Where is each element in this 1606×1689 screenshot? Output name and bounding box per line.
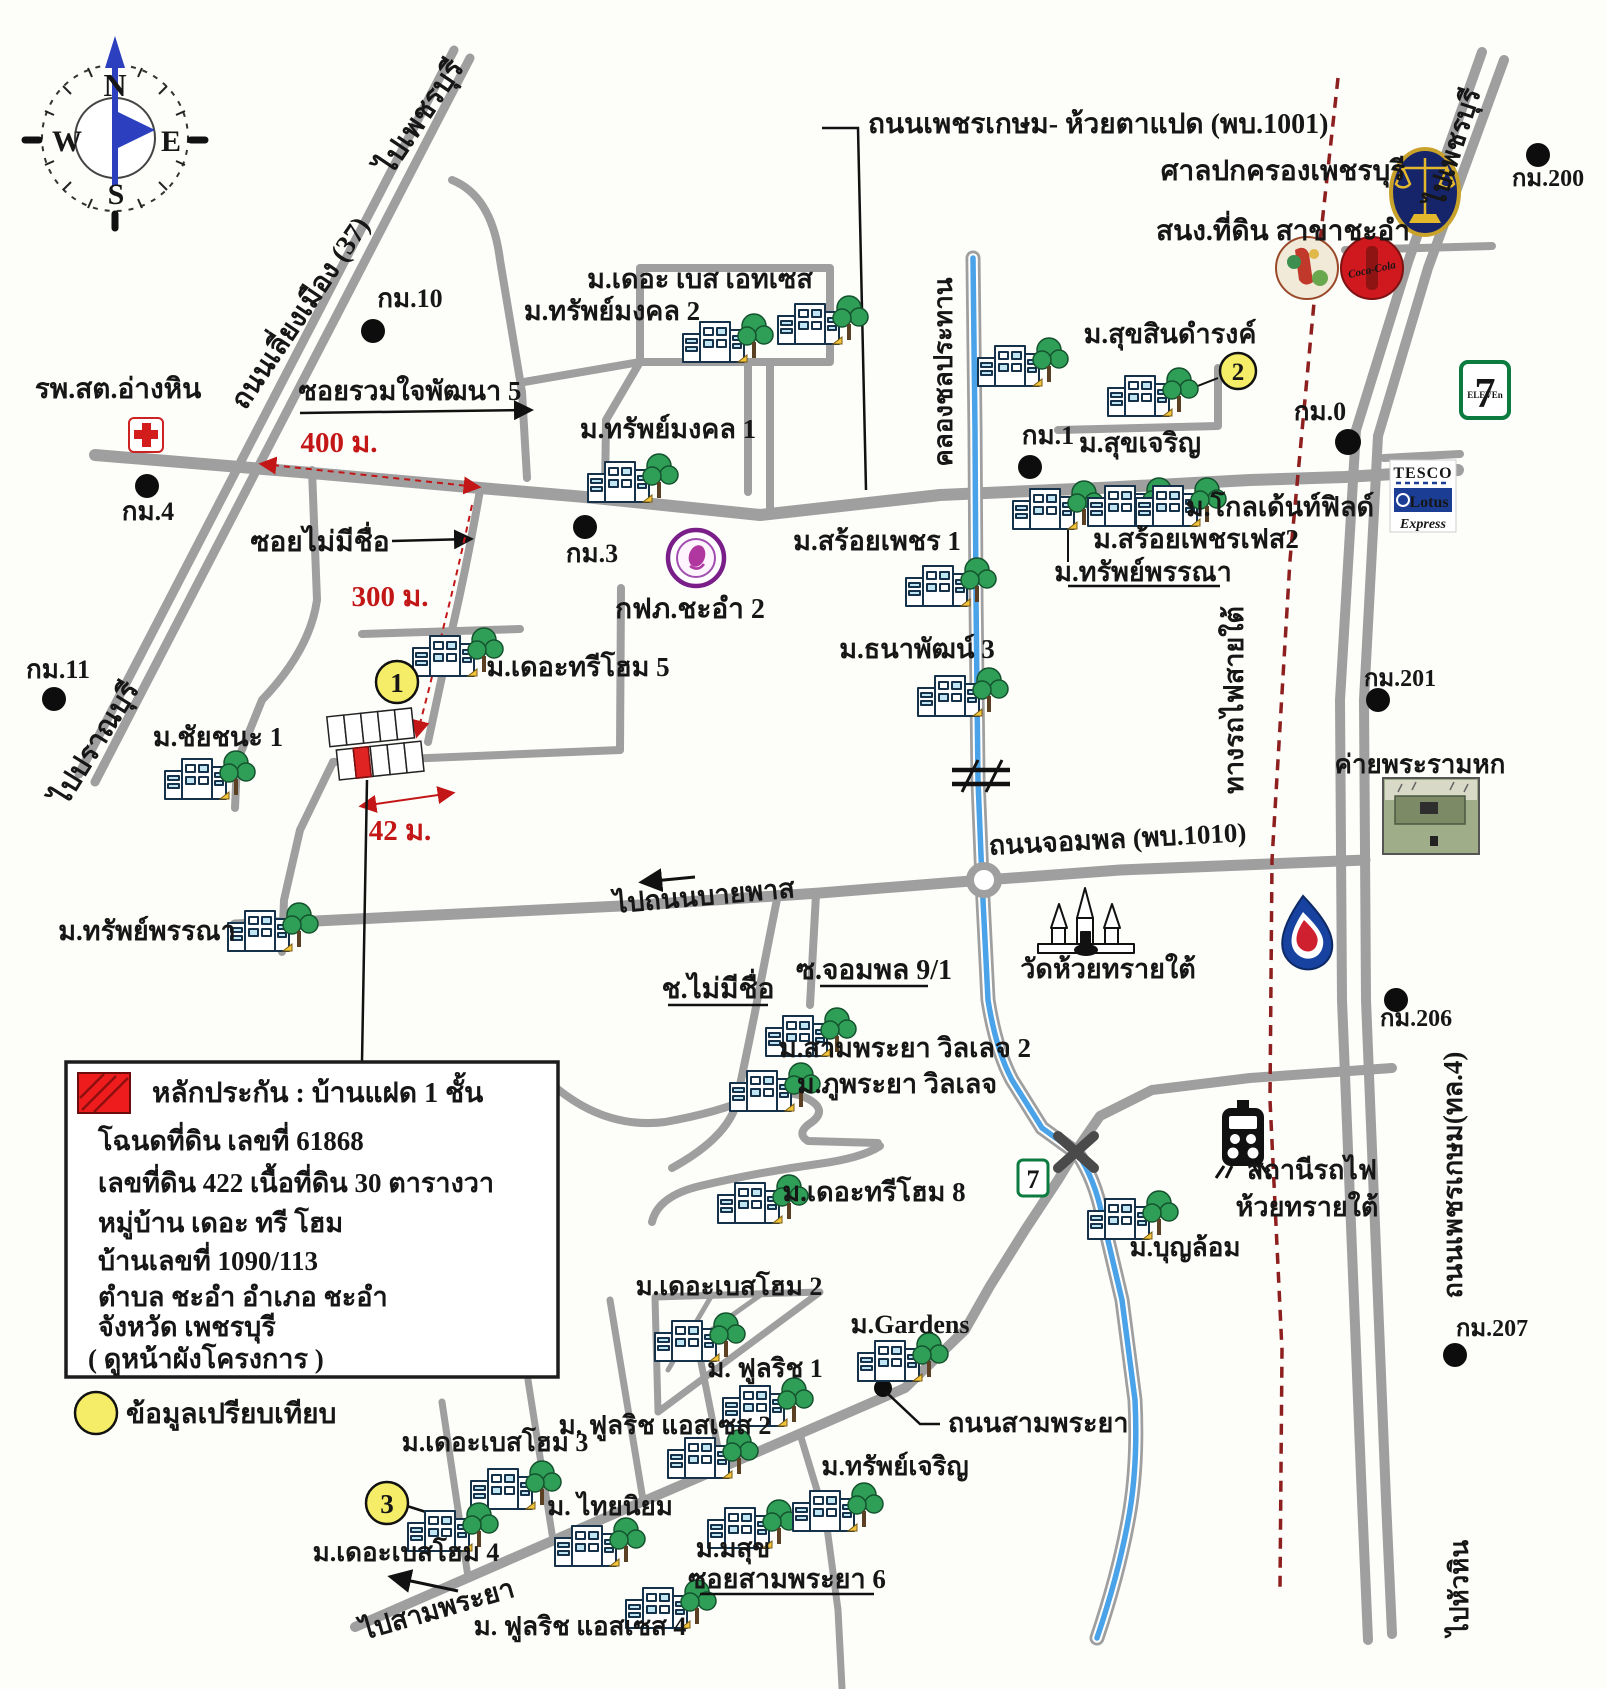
temple-icon bbox=[1038, 888, 1134, 956]
label-km1: กม.1 bbox=[1022, 421, 1074, 450]
express-word: Express bbox=[1399, 517, 1446, 532]
label-health-center: รพ.สต.อ่างหิน bbox=[35, 374, 202, 405]
km3-dot bbox=[573, 515, 597, 539]
km200-dot bbox=[1526, 143, 1550, 167]
building-base-estates2-icon bbox=[778, 296, 868, 344]
legend-note: ( ดูหน้าผังโครงการ ) bbox=[88, 1342, 324, 1376]
label-suksin: ม.สุขสินดำรงค์ bbox=[1084, 318, 1257, 351]
label-basehome3: ม.เดอะเบสโฮม 3 bbox=[402, 1426, 589, 1457]
label-km10: กม.10 bbox=[377, 284, 442, 313]
label-basehome4: ม.เดอะเบสโฮม 4 bbox=[313, 1536, 500, 1567]
building-gardens-icon bbox=[858, 1333, 948, 1381]
label-sapjaroen: ม.ทรัพย์เจริญ bbox=[821, 1451, 968, 1482]
road-fork-right-stub bbox=[810, 894, 816, 1005]
legend-parcel: เลขที่ดิน 422 เนื้อที่ดิน 30 ตารางวา bbox=[98, 1162, 494, 1198]
label-km3: กม.3 bbox=[566, 539, 618, 568]
label-400m: 400 ม. bbox=[300, 427, 377, 459]
label-km201: กม.201 bbox=[1364, 666, 1436, 692]
km10-dot bbox=[361, 319, 385, 343]
tesco-lotus-icon: TESCO Lotus Express bbox=[1390, 460, 1456, 532]
soi-noname-arrow bbox=[392, 539, 470, 541]
label-camp: ค่ายพระรามหก bbox=[1335, 750, 1506, 779]
label-42m: 42 ม. bbox=[369, 815, 432, 847]
road-stub-7eleven bbox=[1384, 454, 1460, 458]
legend-deed: โฉนดที่ดิน เลขที่ 61868 bbox=[97, 1121, 364, 1156]
map-page: N W E S Coca-Cola bbox=[0, 0, 1606, 1689]
measure-42m-line bbox=[362, 793, 452, 806]
label-khlong: คลองชลประทาน bbox=[929, 277, 958, 466]
legend-house-no: บ้านเลขที่ 1090/113 bbox=[98, 1241, 318, 1276]
label-base-estates: ม.เดอะ เบส เอทเซส bbox=[587, 264, 813, 294]
label-jompol: ถนนจอมพล (พบ.1010) bbox=[988, 817, 1247, 860]
marker-2-number: 2 bbox=[1232, 359, 1245, 386]
tesco-word: TESCO bbox=[1393, 465, 1452, 482]
ruamjai-arrow bbox=[300, 410, 530, 413]
road-soi-no-name bbox=[428, 490, 480, 742]
label-thanapat3: ม.ธนาพัฒน์ 3 bbox=[839, 633, 995, 664]
label-treehome5: ม.เดอะทรีโฮม 5 bbox=[486, 650, 669, 682]
property-location-map: N W E S Coca-Cola bbox=[0, 0, 1606, 1689]
label-km207: กม.207 bbox=[1456, 1316, 1528, 1342]
bypass-arrow bbox=[643, 877, 695, 882]
label-land-office: สนง.ที่ดิน สาขาชะอำ bbox=[1156, 210, 1410, 247]
label-km0: กม.0 bbox=[1294, 397, 1346, 426]
label-phetkasem4: ถนนเพชรเกษม(ทล.4) bbox=[1438, 1052, 1468, 1299]
km4-dot bbox=[135, 474, 159, 498]
seven-eleven-icon: 7 ELEVEn bbox=[1461, 362, 1509, 418]
label-km206: กม.206 bbox=[1380, 1006, 1452, 1032]
km0-dot bbox=[1335, 429, 1361, 455]
road-jompol-bypass bbox=[235, 860, 1365, 925]
label-sukjaroen: ม.สุขเจริญ bbox=[1079, 428, 1201, 460]
marker-1-number: 1 bbox=[390, 668, 404, 698]
collateral-swatch bbox=[78, 1073, 130, 1113]
building-canal-north-icon bbox=[978, 338, 1068, 386]
legend-village: หมู่บ้าน เดอะ ทรี โฮม bbox=[98, 1206, 343, 1240]
building-chaichana1-icon bbox=[165, 751, 255, 799]
label-admin-court: ศาลปกครองเพชรบุรี bbox=[1161, 155, 1406, 188]
legend-tambon: ตำบล ชะอำ อำเภอ ชะอำ bbox=[98, 1282, 388, 1312]
building-suksin-icon bbox=[1108, 368, 1198, 416]
road-treehome5-access bbox=[362, 629, 520, 634]
label-fulrich1: ม. ฟูลริช 1 bbox=[707, 1354, 823, 1385]
label-fulrich-asset2: ม. ฟูลริช แอสเซส 2 bbox=[559, 1411, 772, 1442]
road-highway-b bbox=[1364, 436, 1392, 1634]
label-phetkasem-1001: ถนนเพชรเกษม- ห้วยตาแปด (พบ.1001) bbox=[868, 109, 1328, 140]
km207-dot bbox=[1443, 1343, 1467, 1367]
km1-dot bbox=[1018, 455, 1042, 479]
building-thainiyom-icon bbox=[555, 1518, 645, 1566]
camp-photo bbox=[1383, 778, 1479, 854]
label-pea: กฟภ.ชะอำ 2 bbox=[615, 594, 765, 625]
label-basehome2: ม.เดอะเบสโฮม 2 bbox=[636, 1270, 823, 1301]
road-soi-ruamjai5 bbox=[452, 180, 527, 478]
label-thainiyom: ม. ไทยนิยม bbox=[547, 1490, 673, 1521]
compass-n: N bbox=[103, 67, 126, 103]
compass-e: E bbox=[161, 125, 181, 158]
label-km200: กม.200 bbox=[1512, 166, 1584, 192]
lotus-word: Lotus bbox=[1409, 494, 1448, 511]
label-soipetch-fes2: ม.สร้อยเพชรเฟส2 bbox=[1093, 524, 1299, 554]
building-sappanna-sw-icon bbox=[228, 903, 318, 951]
seven-glyph-small: 7 bbox=[1027, 1165, 1040, 1194]
road-network bbox=[79, 50, 1504, 1688]
label-soi-sampraya6: ซอยสามพระยา 6 bbox=[688, 1564, 886, 1594]
label-km11: กม.11 bbox=[26, 655, 90, 684]
land-plot-grid bbox=[327, 707, 424, 780]
label-km4: กม.4 bbox=[122, 497, 174, 526]
label-masuk: ม.มสุข bbox=[696, 1534, 770, 1565]
label-boonlom: ม.บุญล้อม bbox=[1130, 1233, 1241, 1264]
railway-line bbox=[1270, 78, 1338, 1588]
comparison-legend-label: ข้อมูลเปรียบเทียบ bbox=[126, 1398, 336, 1431]
legend-province: จังหวัด เพชรบุรี bbox=[98, 1312, 276, 1344]
eleven-word: ELEVEn bbox=[1467, 390, 1503, 400]
subject-lot-red bbox=[353, 747, 371, 778]
ptt-logo-icon bbox=[1282, 896, 1332, 969]
label-ch-no-name: ช.ไม่มีชื่อ bbox=[662, 968, 775, 1005]
label-to-bypass: ไปถนนบายพาส bbox=[609, 872, 796, 919]
compass-w: W bbox=[52, 125, 82, 158]
label-treehome8: ม.เดอะทรีโฮม 8 bbox=[782, 1175, 965, 1207]
compass-rose: N W E S bbox=[25, 36, 205, 228]
label-gardens: ม.Gardens bbox=[851, 1310, 970, 1339]
building-thanapat3-icon bbox=[918, 668, 1008, 716]
label-300m: 300 ม. bbox=[351, 581, 428, 613]
label-station-1: สถานีรถไฟ bbox=[1247, 1154, 1377, 1185]
label-railway-south: ทางรถไฟสายใต้ bbox=[1218, 606, 1249, 794]
compass-s: S bbox=[108, 178, 125, 211]
hospital-cross-icon bbox=[129, 418, 163, 452]
road-ruamjai-connector bbox=[524, 362, 640, 382]
comparison-legend: ข้อมูลเปรียบเทียบ bbox=[75, 1392, 336, 1434]
label-temple: วัดห้วยทรายใต้ bbox=[1020, 953, 1195, 984]
label-sampraya-v2: ม.สามพระยา วิลเลจ 2 bbox=[779, 1033, 1031, 1063]
legend-box: หลักประกัน : บ้านแฝด 1 ชั้น โฉนดที่ดิน เ… bbox=[66, 1062, 558, 1377]
label-sappanna: ม.ทรัพย์พรรณา bbox=[1054, 556, 1231, 587]
label-soipetch1: ม.สร้อยเพชร 1 bbox=[793, 526, 961, 556]
km11-dot bbox=[42, 687, 66, 711]
building-sapjaroen-icon bbox=[793, 1483, 883, 1531]
roundabout bbox=[970, 866, 998, 894]
seven-eleven-small-icon: 7 bbox=[1018, 1160, 1048, 1196]
label-station-2: ห้วยทรายใต้ bbox=[1236, 1191, 1379, 1222]
road-soi-3 bbox=[610, 1300, 643, 1500]
label-soi-jompol: ซ.จอมพล 9/1 bbox=[796, 955, 952, 986]
label-chaichana1: ม.ชัยชนะ 1 bbox=[153, 722, 283, 752]
label-sappanna-sw: ม.ทรัพย์พรรณา bbox=[58, 915, 235, 946]
pea-emblem-icon bbox=[668, 530, 724, 586]
label-soi-no-name: ซอยไม่มีชื่อ bbox=[250, 521, 389, 558]
label-soi-ruamjai5: ซอยรวมใจพัฒนา 5 bbox=[299, 375, 522, 406]
label-phupraya: ม.ภูพระยา วิลเลจ bbox=[797, 1069, 997, 1101]
label-sampraya-road: ถนนสามพระยา bbox=[948, 1408, 1128, 1438]
label-to-huahin: ไปหัวหิน bbox=[1443, 1540, 1474, 1639]
label-goldenfield: ม.โกลเด้นท์ฟิลด์ bbox=[1186, 490, 1374, 522]
label-fulrich-asset4: ม. ฟูลริช แอสเซส 4 bbox=[474, 1612, 687, 1643]
label-sapmongkol1: ม.ทรัพย์มงคล 1 bbox=[580, 413, 756, 444]
label-sapmongkol2: ม.ทรัพย์มงคล 2 bbox=[524, 295, 700, 326]
marker-3-number: 3 bbox=[380, 1489, 394, 1519]
road-fork-left bbox=[672, 894, 778, 1168]
